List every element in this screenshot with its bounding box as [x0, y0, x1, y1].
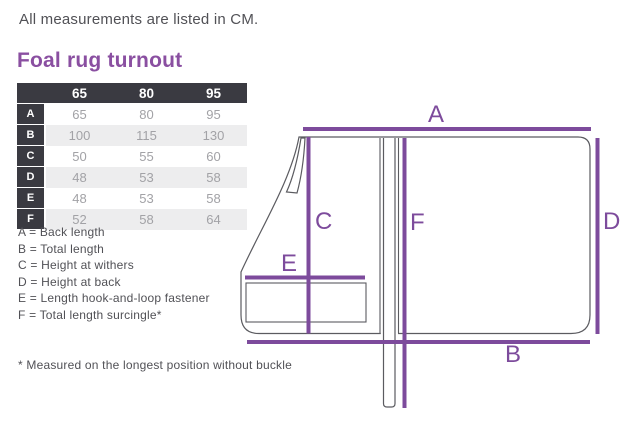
rug-diagram: A B C D E F: [0, 0, 623, 448]
measure-label-e: E: [281, 250, 297, 277]
measure-label-a: A: [428, 101, 444, 128]
measure-label-b: B: [505, 341, 521, 368]
size-guide-page: All measurements are listed in CM. Foal …: [0, 0, 623, 448]
measure-label-d: D: [603, 208, 620, 235]
measure-label-f: F: [410, 209, 425, 236]
measure-label-c: C: [315, 208, 332, 235]
surcingle-strap: [384, 138, 396, 407]
